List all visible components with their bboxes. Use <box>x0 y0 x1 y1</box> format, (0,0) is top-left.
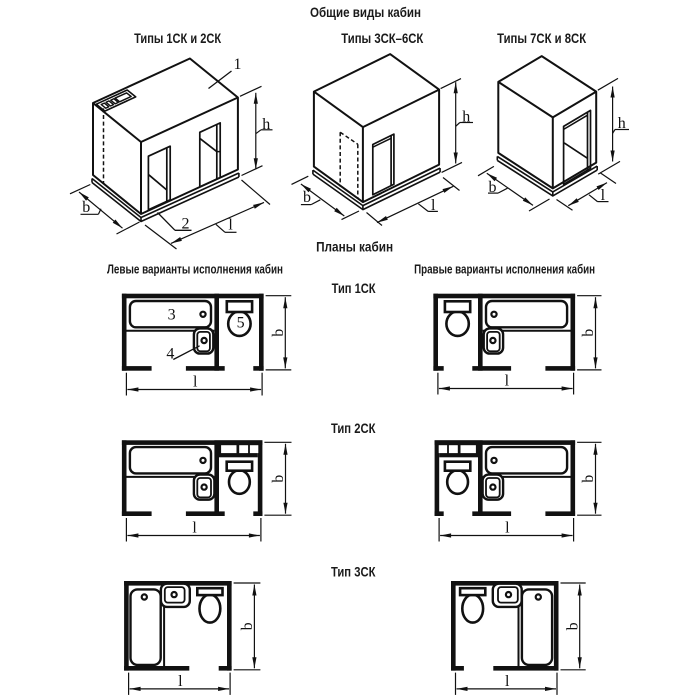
svg-text:l: l <box>505 520 510 537</box>
svg-text:1: 1 <box>234 56 242 73</box>
svg-text:Тип 1СК: Тип 1СК <box>332 280 376 296</box>
svg-text:Планы кабин: Планы кабин <box>316 239 393 255</box>
svg-text:b: b <box>303 189 311 206</box>
svg-text:l: l <box>178 673 183 690</box>
svg-text:b: b <box>270 329 287 337</box>
svg-text:l: l <box>192 520 197 537</box>
svg-text:Тип 3СК: Тип 3СК <box>331 564 376 580</box>
svg-text:l: l <box>228 217 233 234</box>
svg-text:Правые варианты исполнения каб: Правые варианты исполнения кабин <box>414 262 595 277</box>
svg-text:5: 5 <box>237 315 245 332</box>
svg-text:b: b <box>270 475 287 483</box>
svg-text:Типы 3СК–6СК: Типы 3СК–6СК <box>341 30 423 46</box>
svg-text:h: h <box>262 116 270 133</box>
svg-text:b: b <box>564 622 581 630</box>
svg-text:Общие виды кабин: Общие виды кабин <box>310 4 421 20</box>
svg-text:Тип 2СК: Тип 2СК <box>331 420 376 436</box>
svg-text:l: l <box>505 373 510 390</box>
svg-text:b: b <box>580 475 597 483</box>
svg-text:b: b <box>82 199 90 216</box>
svg-text:Левые варианты исполнения каби: Левые варианты исполнения кабин <box>107 262 283 277</box>
svg-text:Типы 7СК и 8СК: Типы 7СК и 8СК <box>497 30 586 46</box>
svg-text:3: 3 <box>168 307 176 324</box>
svg-text:Типы 1СК и 2СК: Типы 1СК и 2СК <box>134 30 221 46</box>
svg-text:b: b <box>239 622 256 630</box>
svg-text:l: l <box>193 374 198 391</box>
svg-text:4: 4 <box>166 345 174 362</box>
svg-text:b: b <box>580 329 597 337</box>
svg-text:l: l <box>505 673 510 690</box>
